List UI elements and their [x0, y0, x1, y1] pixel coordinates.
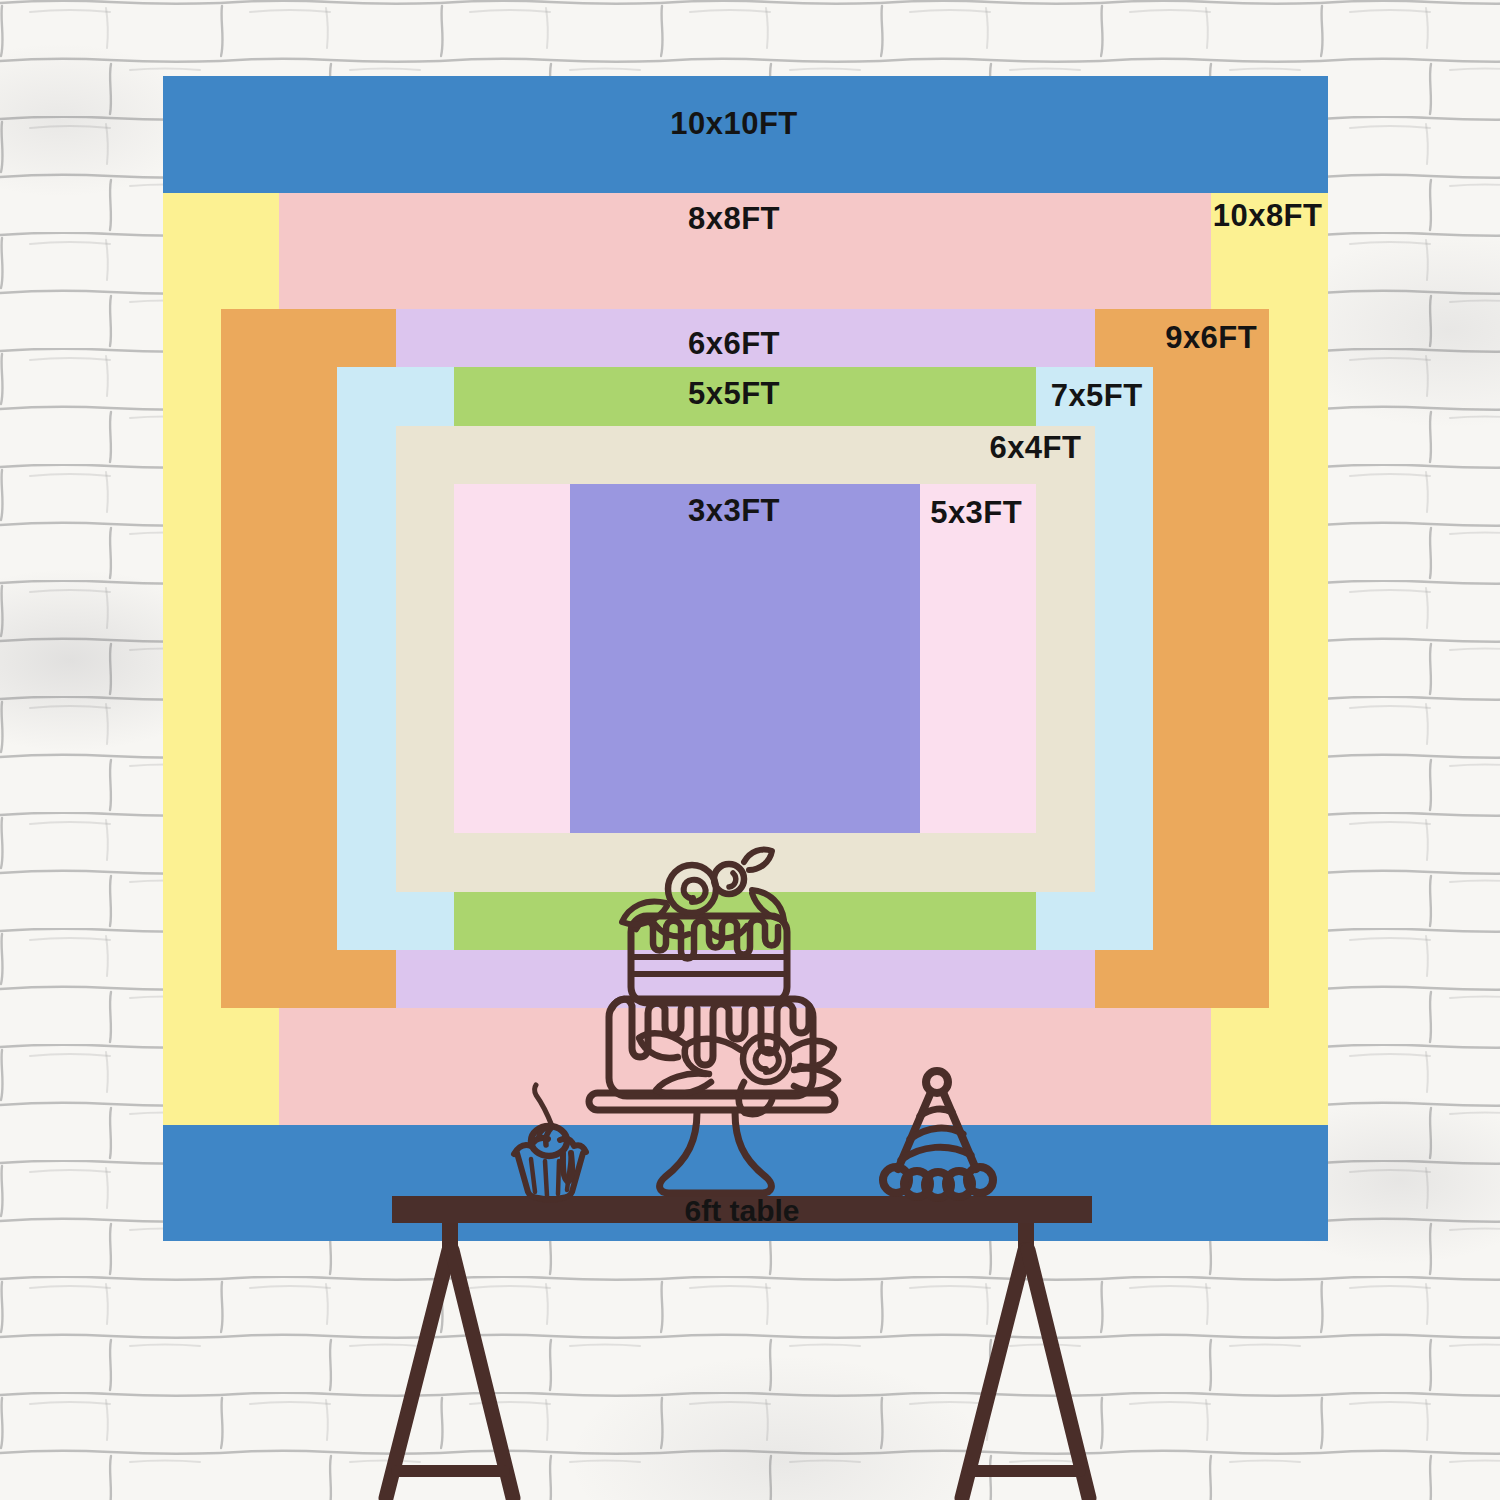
- size-rect-3x3: 3x3FT: [570, 484, 920, 834]
- backdrop-size-chart: 10x10FT10x8FT8x8FT9x6FT6x6FT7x5FT5x5FT6x…: [162, 77, 1328, 1240]
- table-size-label: 6ft table: [392, 1194, 1092, 1228]
- size-label-6x4: 6x4FT: [989, 432, 1081, 465]
- size-label-10x10: 10x10FT: [670, 108, 798, 141]
- size-label-5x5: 5x5FT: [688, 378, 780, 411]
- size-label-8x8: 8x8FT: [688, 203, 780, 236]
- size-label-3x3: 3x3FT: [688, 495, 780, 528]
- size-label-7x5: 7x5FT: [1051, 380, 1143, 413]
- size-label-9x6: 9x6FT: [1165, 322, 1257, 355]
- backdrop-size-chart-image: { "backdrop_chart": { "type": "nested-si…: [0, 0, 1500, 1500]
- size-label-6x6: 6x6FT: [688, 328, 780, 361]
- size-label-5x3: 5x3FT: [930, 497, 1022, 530]
- size-label-10x8: 10x8FT: [1213, 200, 1323, 233]
